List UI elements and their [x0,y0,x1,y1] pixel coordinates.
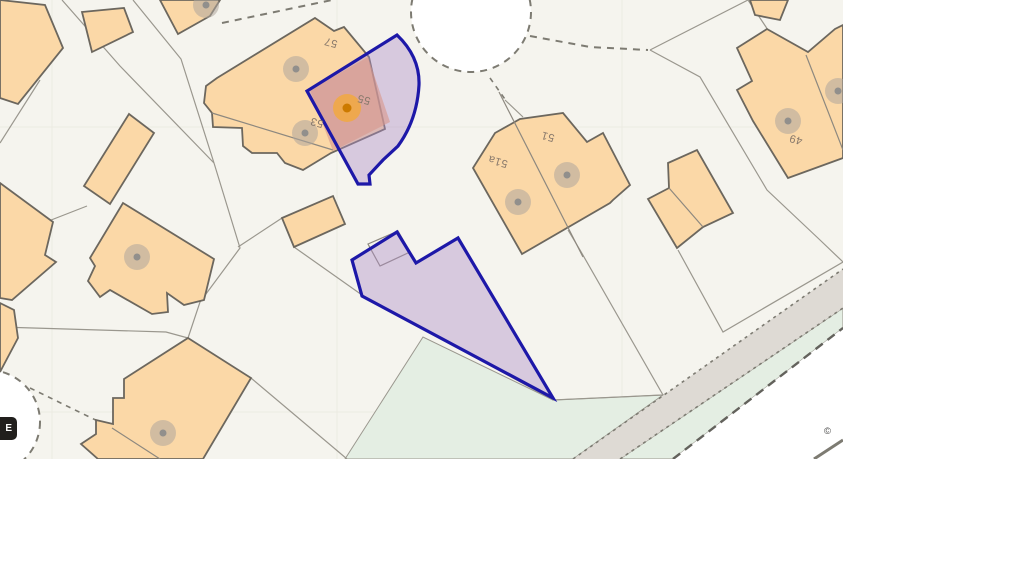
property-marker[interactable] [505,189,531,215]
property-marker[interactable] [283,56,309,82]
map-canvas[interactable]: 5755535151a49 [0,0,843,459]
map-attribution-copyright: © [824,426,831,438]
page: 5755535151a49 E © [0,0,1014,570]
map-badge-label: E [5,423,12,434]
property-marker[interactable] [775,108,801,134]
property-marker[interactable] [554,162,580,188]
property-marker[interactable] [150,420,176,446]
selected-property-marker[interactable] [333,94,361,122]
map-viewport[interactable]: 5755535151a49 E © [0,0,843,459]
map-badge-button[interactable]: E [0,417,17,440]
property-marker[interactable] [124,244,150,270]
